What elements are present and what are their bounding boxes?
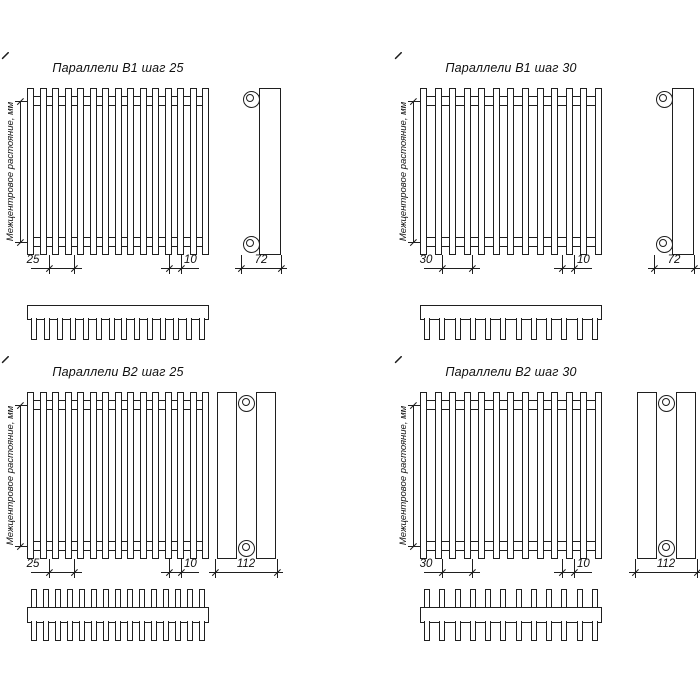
tube-end-tooth <box>43 589 49 609</box>
tube-end-tooth <box>470 318 476 340</box>
tube-end-tooth <box>127 589 133 609</box>
tube-end-tooth <box>160 318 166 340</box>
vertical-dimension-line <box>413 101 414 242</box>
dimension-extension-line <box>574 255 575 274</box>
tube-end-tooth <box>424 589 430 609</box>
tube-end-tooth <box>186 318 192 340</box>
tube-end-tooth <box>187 621 193 641</box>
radiator-tube-column <box>435 88 442 255</box>
tube-end-tooth <box>485 621 491 641</box>
side-view-front-row <box>217 392 237 559</box>
tube-end-tooth <box>55 621 61 641</box>
tube-end-tooth <box>31 589 37 609</box>
tube-end-tooth <box>67 589 73 609</box>
radiator-tube-column <box>165 392 172 559</box>
radiator-tube-column <box>478 88 485 255</box>
tube-end-tooth <box>44 318 50 340</box>
radiator-tube-column <box>140 88 147 255</box>
radiator-tube-column <box>115 392 122 559</box>
tube-end-tooth <box>546 621 552 641</box>
tube-end-tooth <box>592 589 598 609</box>
dimension-extension-line <box>562 559 563 578</box>
tube-end-tooth <box>121 318 127 340</box>
radiator-tube-column <box>595 88 602 255</box>
tube-end-tooth <box>516 318 522 340</box>
tube-end-tooth <box>31 318 37 340</box>
tube-end-tooth <box>455 621 461 641</box>
tube-end-tooth <box>70 318 76 340</box>
tube-end-tooth <box>424 621 430 641</box>
[object Object] <box>2 52 9 59</box>
radiator-tube-column <box>152 88 159 255</box>
top-view-teeth-row-up <box>424 589 598 609</box>
tube-end-tooth <box>561 318 567 340</box>
tube-end-tooth <box>134 318 140 340</box>
radiator-tube-column <box>27 392 34 559</box>
tube-end-tooth <box>91 621 97 641</box>
tube-end-tooth <box>546 589 552 609</box>
tube-end-tooth <box>96 318 102 340</box>
dimension-extension-line <box>472 255 473 274</box>
depth-dimension-label: 112 <box>635 558 697 570</box>
tube-column-row <box>27 392 209 559</box>
[object Object] <box>2 356 9 363</box>
side-view-body <box>672 88 694 255</box>
tube-end-tooth <box>79 621 85 641</box>
tube-end-tooth <box>147 318 153 340</box>
tube-end-tooth <box>163 621 169 641</box>
pipe-connection-circle <box>656 91 673 108</box>
tube-end-tooth <box>439 589 445 609</box>
radiator-tube-column <box>102 88 109 255</box>
radiator-tube-column <box>90 392 97 559</box>
tube-end-tooth <box>199 318 205 340</box>
pipe-connection-circle <box>243 236 260 253</box>
tube-end-tooth <box>592 318 598 340</box>
drawing-quadrant-b2-step25: Параллели В2 шаг 25Межцентровое растояни… <box>1 359 351 659</box>
radiator-tube-column <box>449 392 456 559</box>
tube-end-tooth <box>485 318 491 340</box>
tube-end-tooth <box>139 621 145 641</box>
drawing-title: Параллели В1 шаг 30 <box>420 61 602 75</box>
radiator-tube-column <box>127 88 134 255</box>
dimension-extension-line <box>49 559 50 578</box>
radiator-tube-column <box>40 88 47 255</box>
top-view-teeth-row <box>31 318 205 340</box>
tube-end-tooth <box>531 589 537 609</box>
front-view <box>420 88 602 255</box>
side-view-front-row <box>637 392 657 559</box>
dimension-extension-line <box>74 559 75 578</box>
radiator-tube-column <box>595 392 602 559</box>
radiator-tube-column <box>190 88 197 255</box>
radiator-tube-column <box>580 392 587 559</box>
center-distance-label: Межцентровое растояние, мм <box>398 88 411 255</box>
tube-end-tooth <box>424 318 430 340</box>
tube-end-tooth <box>531 318 537 340</box>
pipe-connection-circle <box>238 540 255 557</box>
end-offset-dimension-label: 10 <box>184 558 210 570</box>
radiator-tube-column <box>77 88 84 255</box>
depth-dimension-line <box>209 572 283 573</box>
drawing-title: Параллели В1 шаг 25 <box>27 61 209 75</box>
dimension-extension-line <box>181 559 182 578</box>
technical-drawing-sheet: { "page": { "background": "#ffffff", "li… <box>0 0 700 700</box>
center-distance-label: Межцентровое растояние, мм <box>398 392 411 559</box>
tube-column-row <box>420 392 602 559</box>
top-view-teeth-row <box>424 318 598 340</box>
drawing-quadrant-b1-step25: Параллели В1 шаг 25Межцентровое растояни… <box>1 55 351 355</box>
tube-end-tooth <box>109 318 115 340</box>
radiator-tube-column <box>202 88 209 255</box>
tube-end-tooth <box>455 318 461 340</box>
end-offset-dimension-label: 10 <box>577 558 603 570</box>
vertical-dimension-line <box>413 405 414 546</box>
drawing-title: Параллели В2 шаг 30 <box>420 365 602 379</box>
tube-end-tooth <box>43 621 49 641</box>
radiator-tube-column <box>522 88 529 255</box>
radiator-tube-column <box>435 392 442 559</box>
front-view <box>27 88 209 255</box>
tube-end-tooth <box>199 621 205 641</box>
radiator-tube-column <box>127 392 134 559</box>
tube-end-tooth <box>470 621 476 641</box>
dimension-extension-line <box>281 255 282 274</box>
tube-end-tooth <box>485 589 491 609</box>
tube-column-row <box>27 88 209 255</box>
radiator-tube-column <box>65 88 72 255</box>
tube-end-tooth <box>127 621 133 641</box>
radiator-tube-column <box>522 392 529 559</box>
step-dimension-label: 25 <box>19 558 47 570</box>
dimension-extension-line <box>49 255 50 274</box>
dimension-extension-line <box>442 255 443 274</box>
top-view-teeth-row-down <box>31 621 205 641</box>
[object Object] <box>395 356 402 363</box>
tube-end-tooth <box>115 589 121 609</box>
pipe-connection-circle <box>238 395 255 412</box>
tube-end-tooth <box>91 589 97 609</box>
tube-end-tooth <box>546 318 552 340</box>
radiator-tube-column <box>420 88 427 255</box>
tube-end-tooth <box>187 589 193 609</box>
tube-end-tooth <box>500 621 506 641</box>
pipe-connection-circle <box>656 236 673 253</box>
tube-end-tooth <box>175 621 181 641</box>
tube-end-tooth <box>103 621 109 641</box>
pipe-connection-inner-circle <box>242 543 250 551</box>
vertical-dimension-line <box>20 405 21 546</box>
dimension-extension-line <box>472 559 473 578</box>
tube-end-tooth <box>577 589 583 609</box>
pipe-connection-inner-circle <box>242 398 250 406</box>
tube-end-tooth <box>531 621 537 641</box>
side-view-body <box>259 88 281 255</box>
dimension-extension-line <box>169 255 170 274</box>
radiator-tube-column <box>464 88 471 255</box>
tube-end-tooth <box>163 589 169 609</box>
side-view-back-row <box>256 392 276 559</box>
tube-end-tooth <box>151 589 157 609</box>
pipe-connection-inner-circle <box>662 398 670 406</box>
tube-end-tooth <box>561 589 567 609</box>
tube-end-tooth <box>577 318 583 340</box>
radiator-tube-column <box>551 392 558 559</box>
radiator-tube-column <box>52 88 59 255</box>
front-view <box>27 392 209 559</box>
end-offset-dimension-label: 10 <box>184 254 210 266</box>
step-dimension-label: 30 <box>412 558 440 570</box>
radiator-tube-column <box>115 88 122 255</box>
depth-dimension-line <box>629 572 700 573</box>
step-dimension-label: 30 <box>412 254 440 266</box>
tube-end-tooth <box>175 589 181 609</box>
center-distance-label: Межцентровое растояние, мм <box>5 88 18 255</box>
pipe-connection-circle <box>658 540 675 557</box>
tube-end-tooth <box>592 621 598 641</box>
tube-end-tooth <box>173 318 179 340</box>
tube-end-tooth <box>516 621 522 641</box>
radiator-tube-column <box>202 392 209 559</box>
dimension-extension-line <box>562 255 563 274</box>
tube-end-tooth <box>577 621 583 641</box>
tube-end-tooth <box>83 318 89 340</box>
[object Object] <box>395 52 402 59</box>
tube-end-tooth <box>439 621 445 641</box>
pipe-connection-circle <box>658 395 675 412</box>
radiator-tube-column <box>580 88 587 255</box>
dimension-extension-line <box>574 559 575 578</box>
top-view-teeth-row-down <box>424 621 598 641</box>
pipe-connection-inner-circle <box>246 94 254 102</box>
pipe-connection-circle <box>243 91 260 108</box>
radiator-tube-column <box>190 392 197 559</box>
radiator-tube-column <box>493 392 500 559</box>
pipe-connection-inner-circle <box>659 239 667 247</box>
radiator-tube-column <box>90 88 97 255</box>
dimension-extension-line <box>697 559 698 578</box>
pipe-connection-inner-circle <box>662 543 670 551</box>
end-offset-dimension-label: 10 <box>577 254 603 266</box>
radiator-tube-column <box>478 392 485 559</box>
depth-dimension-label: 72 <box>654 254 694 266</box>
tube-end-tooth <box>500 589 506 609</box>
radiator-tube-column <box>165 88 172 255</box>
radiator-tube-column <box>77 392 84 559</box>
radiator-tube-column <box>507 392 514 559</box>
radiator-tube-column <box>464 392 471 559</box>
radiator-tube-column <box>420 392 427 559</box>
radiator-tube-column <box>537 392 544 559</box>
side-view-back-row <box>676 392 696 559</box>
dimension-extension-line <box>181 255 182 274</box>
tube-end-tooth <box>199 589 205 609</box>
top-view-teeth-row-up <box>31 589 205 609</box>
tube-column-row <box>420 88 602 255</box>
tube-end-tooth <box>31 621 37 641</box>
radiator-tube-column <box>177 392 184 559</box>
radiator-tube-column <box>140 392 147 559</box>
drawing-quadrant-b1-step30: Параллели В1 шаг 30Межцентровое растояни… <box>394 55 700 355</box>
tube-end-tooth <box>151 621 157 641</box>
tube-end-tooth <box>57 318 63 340</box>
depth-dimension-label: 72 <box>241 254 281 266</box>
step-dimension-label: 25 <box>19 254 47 266</box>
tube-end-tooth <box>139 589 145 609</box>
radiator-tube-column <box>177 88 184 255</box>
dimension-extension-line <box>169 559 170 578</box>
tube-end-tooth <box>103 589 109 609</box>
pipe-connection-inner-circle <box>246 239 254 247</box>
center-distance-label: Межцентровое растояние, мм <box>5 392 18 559</box>
radiator-tube-column <box>449 88 456 255</box>
radiator-tube-column <box>52 392 59 559</box>
dimension-extension-line <box>74 255 75 274</box>
radiator-tube-column <box>152 392 159 559</box>
front-view <box>420 392 602 559</box>
radiator-tube-column <box>493 88 500 255</box>
tube-end-tooth <box>439 318 445 340</box>
pipe-connection-inner-circle <box>659 94 667 102</box>
radiator-tube-column <box>507 88 514 255</box>
tube-end-tooth <box>115 621 121 641</box>
radiator-tube-column <box>566 392 573 559</box>
tube-end-tooth <box>79 589 85 609</box>
radiator-tube-column <box>537 88 544 255</box>
radiator-tube-column <box>102 392 109 559</box>
dimension-extension-line <box>694 255 695 274</box>
vertical-dimension-line <box>20 101 21 242</box>
tube-end-tooth <box>470 589 476 609</box>
dimension-extension-line <box>442 559 443 578</box>
radiator-tube-column <box>65 392 72 559</box>
tube-end-tooth <box>500 318 506 340</box>
tube-end-tooth <box>455 589 461 609</box>
depth-dimension-label: 112 <box>215 558 277 570</box>
radiator-tube-column <box>566 88 573 255</box>
radiator-tube-column <box>40 392 47 559</box>
tube-end-tooth <box>561 621 567 641</box>
drawing-quadrant-b2-step30: Параллели В2 шаг 30Межцентровое растояни… <box>394 359 700 659</box>
radiator-tube-column <box>27 88 34 255</box>
tube-end-tooth <box>55 589 61 609</box>
radiator-tube-column <box>551 88 558 255</box>
tube-end-tooth <box>67 621 73 641</box>
dimension-extension-line <box>277 559 278 578</box>
tube-end-tooth <box>516 589 522 609</box>
drawing-title: Параллели В2 шаг 25 <box>27 365 209 379</box>
